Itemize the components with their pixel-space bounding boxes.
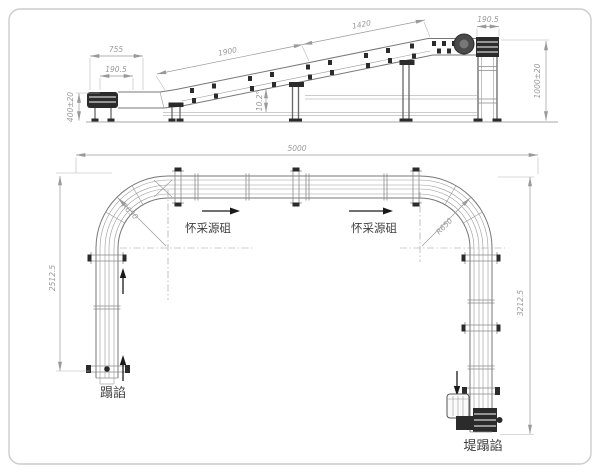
dim-1000-label: 1000±20	[533, 63, 542, 98]
drawing-canvas: 755 190.5 400±20 1900	[0, 0, 600, 473]
infeed-label: 蹋諂	[100, 385, 126, 401]
infeed-shaft	[104, 366, 110, 372]
dim-2512-label: 2512.5	[48, 265, 57, 291]
dim-angle-label: 10.2°	[255, 91, 264, 112]
dim-190-right-label: 190.5	[477, 15, 499, 24]
tail-drum	[87, 92, 118, 108]
flow-label-right: 怀采源砠	[351, 221, 397, 235]
dim-190-left-label: 190.5	[105, 65, 127, 74]
dim-5000-label: 5000	[287, 144, 306, 153]
dim-755-label: 755	[109, 45, 124, 54]
flow-label-left: 怀采源砠	[185, 221, 231, 235]
dim-400-label: 400±20	[66, 92, 75, 122]
dim-3212-label: 3212.5	[516, 290, 525, 316]
outfeed-label: 堤蹋諂	[463, 438, 502, 454]
